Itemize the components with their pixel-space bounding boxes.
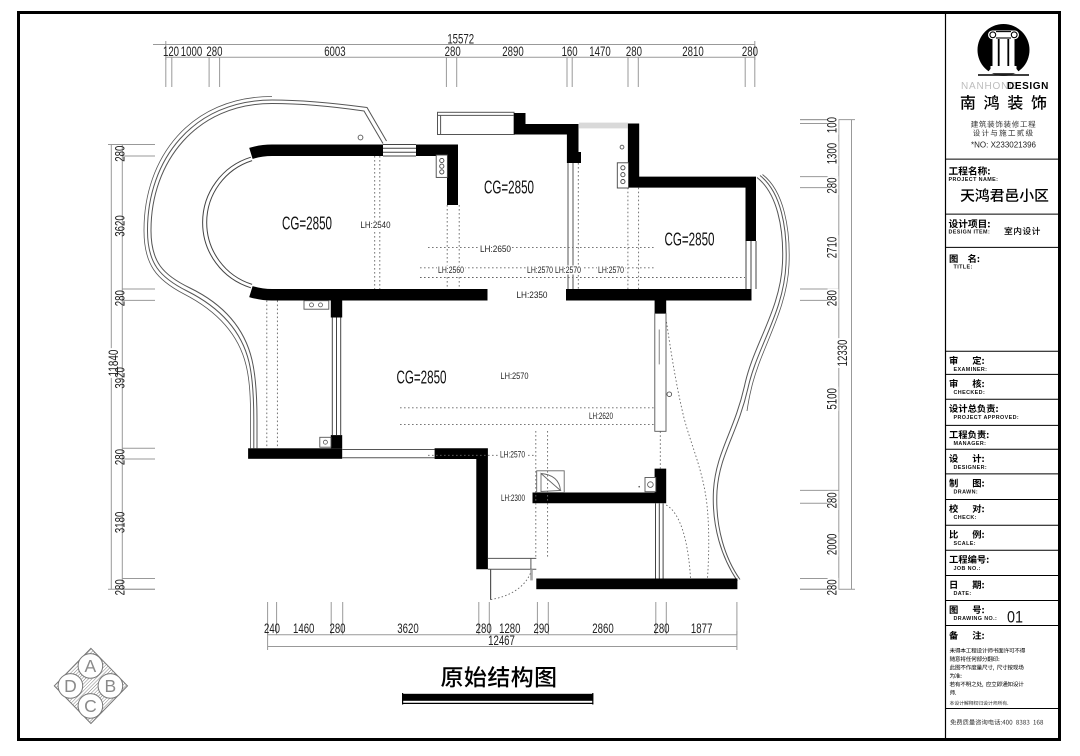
svg-text:280: 280 [653,620,669,636]
svg-text:280: 280 [206,43,222,59]
svg-text:280: 280 [742,43,758,59]
svg-text:PROJECT APPROVED:: PROJECT APPROVED: [954,415,1020,421]
svg-text:280: 280 [112,146,128,162]
svg-text:240: 240 [264,620,280,636]
svg-text:280: 280 [112,290,128,306]
svg-text:01: 01 [1007,608,1023,627]
svg-text:1300: 1300 [824,143,840,165]
svg-text:EXAMINER:: EXAMINER: [954,367,988,373]
svg-text:LH:2300: LH:2300 [501,493,525,504]
svg-text:LH:2350: LH:2350 [517,290,548,301]
svg-text:DESIGN ITEM:: DESIGN ITEM: [949,230,991,236]
svg-text:280: 280 [824,290,840,306]
svg-text:6003: 6003 [324,43,346,59]
svg-text:D: D [64,676,77,696]
svg-text:280: 280 [112,449,128,465]
svg-text:CG=2850: CG=2850 [282,214,332,234]
svg-text:160: 160 [562,43,578,59]
svg-text:5100: 5100 [824,388,840,410]
svg-text:DATE:: DATE: [954,591,972,597]
svg-text:280: 280 [626,43,642,59]
svg-text:3620: 3620 [397,620,419,636]
svg-text:LH:2570: LH:2570 [500,450,525,461]
svg-text:DRAWING NO.:: DRAWING NO.: [954,616,998,622]
svg-text:290: 290 [533,620,549,636]
svg-text:12467: 12467 [488,632,515,648]
svg-text:LH:2650: LH:2650 [480,244,511,255]
svg-text:2860: 2860 [592,620,614,636]
svg-text:120: 120 [163,43,179,59]
svg-text:B: B [105,676,117,696]
svg-text:1460: 1460 [293,620,315,636]
svg-text:CG=2850: CG=2850 [665,230,715,250]
svg-text:280: 280 [445,43,461,59]
svg-text:1470: 1470 [589,43,611,59]
svg-text:LH:2620: LH:2620 [589,411,613,422]
svg-text:*NO: X233021396: *NO: X233021396 [971,141,1036,150]
svg-text:CG=2850: CG=2850 [484,178,534,198]
svg-text:TITLE:: TITLE: [954,265,973,271]
svg-text:3620: 3620 [112,215,128,237]
svg-text:C: C [84,696,97,716]
svg-text:1877: 1877 [691,620,713,636]
svg-text:1000: 1000 [181,43,203,59]
svg-text:280: 280 [824,492,840,508]
svg-text:CHECKED:: CHECKED: [954,390,986,396]
svg-text:LH:2570: LH:2570 [598,265,624,276]
svg-text:LH:2540: LH:2540 [361,220,391,231]
svg-text:3920: 3920 [112,367,128,389]
svg-text:12330: 12330 [834,339,850,366]
svg-text:280: 280 [824,579,840,595]
svg-text:LH:2570: LH:2570 [555,265,581,276]
svg-text:CG=2850: CG=2850 [397,368,447,388]
svg-text:2890: 2890 [502,43,524,59]
svg-text:100: 100 [824,117,840,133]
svg-text:LH:2570: LH:2570 [527,265,553,276]
svg-text:2710: 2710 [824,237,840,259]
svg-text:DESIGNER:: DESIGNER: [954,465,988,471]
svg-text:280: 280 [112,579,128,595]
svg-text:LH:2570: LH:2570 [501,371,529,382]
svg-text:CHECK:: CHECK: [954,515,977,521]
svg-text:2810: 2810 [682,43,704,59]
svg-text:280: 280 [824,177,840,193]
svg-text:DRAWN:: DRAWN: [954,490,979,496]
svg-text:A: A [85,656,97,676]
svg-text:DESIGN: DESIGN [1007,81,1049,92]
svg-text:2000: 2000 [824,534,840,556]
svg-text:LH:2560: LH:2560 [438,265,464,276]
svg-text:PROJECT NAME:: PROJECT NAME: [949,177,999,183]
svg-text:3180: 3180 [112,512,128,534]
svg-text:MANAGER:: MANAGER: [954,441,987,447]
svg-text:JOB NO.:: JOB NO.: [954,566,981,572]
svg-text:SCALE:: SCALE: [954,541,976,547]
svg-text:280: 280 [329,620,345,636]
